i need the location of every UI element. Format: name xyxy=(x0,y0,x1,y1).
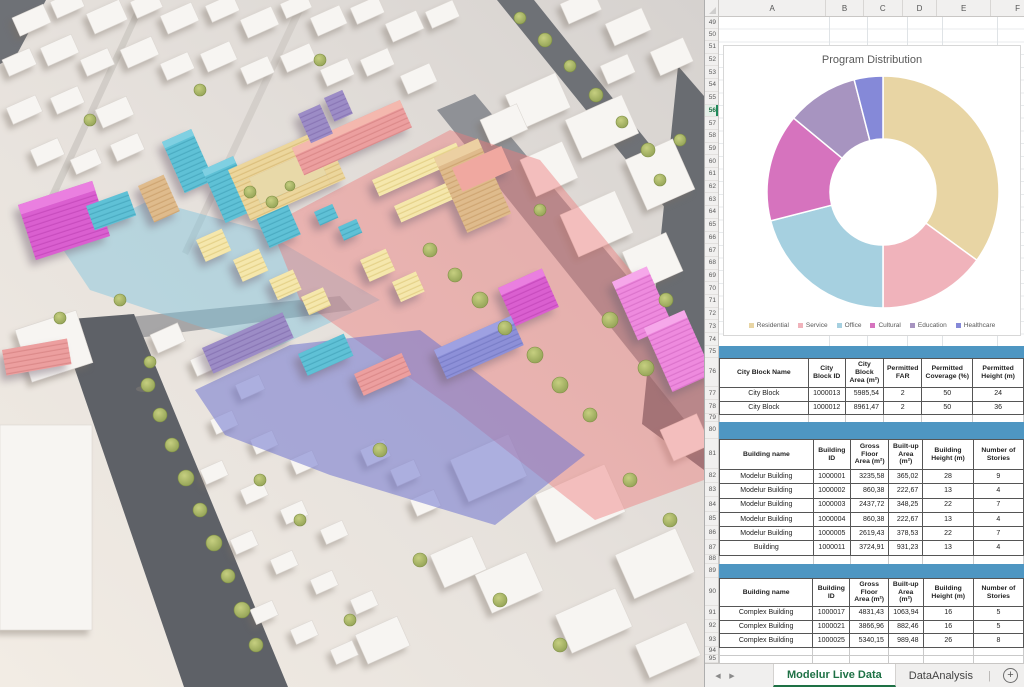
column-header-cell[interactable]: Permitted Coverage (%) xyxy=(922,359,973,388)
city-render xyxy=(0,0,704,687)
column-header-cell[interactable]: Gross Floor Area (m²) xyxy=(850,440,889,470)
legend-swatch xyxy=(870,323,875,328)
cell[interactable]: 8 xyxy=(973,634,1023,648)
legend-item: Education xyxy=(910,322,947,329)
row-header-86[interactable]: 86 xyxy=(705,526,718,540)
column-header-cell[interactable]: Building name xyxy=(720,579,813,607)
table-row: Modelur Building1000002860,38222,67134 xyxy=(720,484,1024,498)
row-header-93[interactable]: 93 xyxy=(705,633,718,647)
cell[interactable]: 365,02 xyxy=(889,470,923,484)
cell[interactable]: 1000002 xyxy=(813,484,850,498)
cell[interactable]: Modelur Building xyxy=(720,498,814,512)
cell[interactable]: 1063,94 xyxy=(888,607,923,621)
legend-swatch xyxy=(910,323,915,328)
column-header-F[interactable]: F xyxy=(991,0,1024,16)
row-header-76[interactable]: 76 xyxy=(705,358,718,387)
cell[interactable]: 5 xyxy=(973,607,1023,621)
table-row: Building10000113724,91931,23134 xyxy=(720,541,1024,555)
table-row: Complex Building10000213866,96882,46165 xyxy=(720,620,1024,634)
cell[interactable]: 8961,47 xyxy=(845,401,883,415)
chart-legend: ResidentialServiceOfficeCulturalEducatio… xyxy=(724,322,1020,329)
row-header-95[interactable]: 95 xyxy=(705,655,718,663)
row-header-53[interactable]: 53 xyxy=(705,66,718,79)
cell[interactable]: 860,38 xyxy=(850,512,889,526)
column-header-cell[interactable]: Built-up Area (m²) xyxy=(888,579,923,607)
column-header-B[interactable]: B xyxy=(826,0,863,16)
cell[interactable]: 3866,96 xyxy=(850,620,889,634)
legend-item: Cultural xyxy=(870,322,900,329)
cell[interactable]: 1000003 xyxy=(813,498,850,512)
cell[interactable]: Modelur Building xyxy=(720,512,814,526)
row-header-57[interactable]: 57 xyxy=(705,117,718,130)
column-header-cell[interactable]: Building Height (m) xyxy=(923,440,974,470)
donut-segment-office[interactable] xyxy=(771,205,883,308)
legend-item: Healthcare xyxy=(956,322,995,329)
cell[interactable]: 222,67 xyxy=(889,484,923,498)
tab-dataanalysis[interactable]: DataAnalysis xyxy=(896,664,986,687)
modelur-building-table: Building nameBuilding IDGross Floor Area… xyxy=(719,439,1024,565)
row-header-54[interactable]: 54 xyxy=(705,79,718,92)
row-header-50[interactable]: 50 xyxy=(705,29,718,41)
row-header-51[interactable]: 51 xyxy=(705,41,718,54)
cell[interactable] xyxy=(813,648,850,656)
cell[interactable]: 1000011 xyxy=(813,541,850,555)
empty-row xyxy=(720,648,1024,656)
table-row: City Block10000128961,4725036 xyxy=(720,401,1024,415)
cell[interactable]: 24 xyxy=(973,388,1024,402)
column-header-cell[interactable]: Built-up Area (m²) xyxy=(889,440,923,470)
row-header-77[interactable]: 77 xyxy=(705,387,718,401)
row-header-89[interactable]: 89 xyxy=(705,564,718,578)
3d-city-viewport[interactable] xyxy=(0,0,704,687)
column-header-cell[interactable]: Building ID xyxy=(813,440,850,470)
legend-item: Residential xyxy=(749,322,789,329)
table-row: Modelur Building1000004860,38222,67134 xyxy=(720,512,1024,526)
column-header-cell[interactable]: Permitted FAR xyxy=(884,359,922,388)
cell[interactable]: 5985,54 xyxy=(845,388,883,402)
cell[interactable]: 5340,15 xyxy=(850,634,889,648)
complex-building-table: Building nameBuilding IDGross Floor Area… xyxy=(719,578,1024,664)
donut-chart xyxy=(724,46,1020,335)
row-header-52[interactable]: 52 xyxy=(705,54,718,67)
cell[interactable] xyxy=(888,648,923,656)
table-row: Complex Building10000174831,431063,94165 xyxy=(720,607,1024,621)
column-header-cell[interactable]: City Block Area (m²) xyxy=(845,359,883,388)
legend-swatch xyxy=(749,323,754,328)
cell[interactable]: 26 xyxy=(923,634,973,648)
cell[interactable]: 22 xyxy=(923,527,974,541)
row-header-62[interactable]: 62 xyxy=(705,181,718,194)
tab-separator: | xyxy=(986,664,993,687)
legend-swatch xyxy=(798,323,803,328)
donut-segment-residential[interactable] xyxy=(883,76,999,260)
row-header-90[interactable]: 90 xyxy=(705,578,718,606)
column-header-cell[interactable]: Building ID xyxy=(813,579,850,607)
legend-swatch xyxy=(956,323,961,328)
cell[interactable]: 4831,43 xyxy=(850,607,889,621)
row-header-65[interactable]: 65 xyxy=(705,219,718,232)
cell[interactable]: 1000001 xyxy=(813,470,850,484)
row-header-55[interactable]: 55 xyxy=(705,92,718,105)
row-header-82[interactable]: 82 xyxy=(705,469,718,483)
cell[interactable]: 989,48 xyxy=(888,634,923,648)
legend-swatch xyxy=(837,323,842,328)
column-headers: ABCDEF xyxy=(705,0,1024,17)
cell[interactable] xyxy=(720,648,813,656)
cell[interactable]: 13 xyxy=(923,484,974,498)
row-header-88[interactable]: 88 xyxy=(705,555,718,564)
cell[interactable]: 1000012 xyxy=(808,401,845,415)
tab-modelur-live-data[interactable]: Modelur Live Data xyxy=(773,664,896,687)
legend-label: Cultural xyxy=(878,322,900,329)
legend-item: Service xyxy=(798,322,828,329)
cell[interactable]: 1000021 xyxy=(813,620,850,634)
cell[interactable]: 1000013 xyxy=(808,388,845,402)
row-header-83[interactable]: 83 xyxy=(705,483,718,497)
legend-label: Education xyxy=(918,322,947,329)
table-header-band[interactable] xyxy=(719,346,1024,358)
column-header-cell[interactable]: Gross Floor Area (m²) xyxy=(850,579,889,607)
cell[interactable]: 4 xyxy=(973,541,1023,555)
table-row: Complex Building10000255340,15989,48268 xyxy=(720,634,1024,648)
cell[interactable]: 36 xyxy=(973,401,1024,415)
row-header-92[interactable]: 92 xyxy=(705,620,718,634)
cell[interactable]: Modelur Building xyxy=(720,484,814,498)
row-header-74[interactable]: 74 xyxy=(705,333,718,346)
cell[interactable]: 22 xyxy=(923,498,974,512)
column-header-A[interactable]: A xyxy=(719,0,827,16)
cell[interactable]: 1000004 xyxy=(813,512,850,526)
cell[interactable]: Modelur Building xyxy=(720,470,814,484)
select-all-corner[interactable] xyxy=(705,0,719,16)
cell[interactable]: 7 xyxy=(973,527,1023,541)
cell[interactable]: 5 xyxy=(973,620,1023,634)
sheet-tab-bar: ◀ ▶ Modelur Live Data DataAnalysis | + xyxy=(705,663,1024,687)
cell[interactable]: 16 xyxy=(923,620,973,634)
cell[interactable]: 3235,58 xyxy=(850,470,889,484)
column-header-cell[interactable]: Building name xyxy=(720,440,814,470)
tab-nav-right-icon[interactable]: ▶ xyxy=(725,664,739,687)
row-header-78[interactable]: 78 xyxy=(705,400,718,414)
row-header-81[interactable]: 81 xyxy=(705,439,718,469)
table-row: Modelur Building10000032437,72348,25227 xyxy=(720,498,1024,512)
row-header-73[interactable]: 73 xyxy=(705,320,718,333)
legend-label: Healthcare xyxy=(964,322,995,329)
row-header-66[interactable]: 66 xyxy=(705,232,718,245)
cell[interactable]: 348,25 xyxy=(889,498,923,512)
row-header-56[interactable]: 56 xyxy=(705,105,718,118)
cell[interactable]: City Block xyxy=(720,401,809,415)
cell[interactable] xyxy=(850,648,889,656)
cell[interactable]: 860,38 xyxy=(850,484,889,498)
cell[interactable]: 50 xyxy=(922,401,973,415)
row-header-75[interactable]: 75 xyxy=(705,346,718,358)
cell[interactable]: 13 xyxy=(923,512,974,526)
cell[interactable] xyxy=(973,648,1023,656)
row-header-58[interactable]: 58 xyxy=(705,130,718,143)
row-header-70[interactable]: 70 xyxy=(705,282,718,295)
table-header-band[interactable] xyxy=(719,422,1024,439)
city-block-table: City Block NameCity Block IDCity Block A… xyxy=(719,358,1024,423)
cell[interactable]: 222,67 xyxy=(889,512,923,526)
table-row: City Block10000135985,5425024 xyxy=(720,388,1024,402)
row-header-72[interactable]: 72 xyxy=(705,308,718,321)
cell[interactable]: 378,53 xyxy=(889,527,923,541)
table-header-band[interactable] xyxy=(719,564,1024,578)
column-header-E[interactable]: E xyxy=(937,0,991,16)
cell[interactable]: 1000017 xyxy=(813,607,850,621)
column-header-cell[interactable]: Permitted Height (m) xyxy=(973,359,1024,388)
column-header-cell[interactable]: City Block ID xyxy=(808,359,845,388)
table-row: Modelur Building10000052619,43378,53227 xyxy=(720,527,1024,541)
cell[interactable]: 16 xyxy=(923,607,973,621)
cell[interactable]: Complex Building xyxy=(720,620,813,634)
row-header-71[interactable]: 71 xyxy=(705,295,718,308)
row-header-80[interactable]: 80 xyxy=(705,422,718,439)
cell[interactable]: 28 xyxy=(923,470,974,484)
cell[interactable]: 4 xyxy=(973,484,1023,498)
row-header-64[interactable]: 64 xyxy=(705,206,718,219)
row-header-87[interactable]: 87 xyxy=(705,540,718,554)
column-header-cell[interactable]: City Block Name xyxy=(720,359,809,388)
chart-area[interactable]: Program Distribution ResidentialServiceO… xyxy=(723,45,1021,336)
cell[interactable]: Modelur Building xyxy=(720,527,814,541)
app-window: ABCDEF 495051525354555657585960616263646… xyxy=(0,0,1024,687)
row-header-49[interactable]: 49 xyxy=(705,17,718,29)
cell[interactable]: 2437,72 xyxy=(850,498,889,512)
cell[interactable]: Complex Building xyxy=(720,607,813,621)
cell[interactable]: Building xyxy=(720,541,814,555)
excel-panel: ABCDEF 495051525354555657585960616263646… xyxy=(704,0,1024,687)
cell[interactable]: 4 xyxy=(973,512,1023,526)
row-header-59[interactable]: 59 xyxy=(705,143,718,156)
column-header-cell[interactable]: Building Height (m) xyxy=(923,579,973,607)
column-header-D[interactable]: D xyxy=(903,0,937,16)
cell[interactable]: 9 xyxy=(973,470,1023,484)
row-header-68[interactable]: 68 xyxy=(705,257,718,270)
cell[interactable]: 3724,91 xyxy=(850,541,889,555)
row-header-63[interactable]: 63 xyxy=(705,193,718,206)
row-header-67[interactable]: 67 xyxy=(705,244,718,257)
cell[interactable]: 1000025 xyxy=(813,634,850,648)
legend-label: Residential xyxy=(757,322,789,329)
cell[interactable]: 2 xyxy=(884,401,922,415)
column-header-C[interactable]: C xyxy=(864,0,903,16)
cell[interactable]: 931,23 xyxy=(889,541,923,555)
cell[interactable]: City Block xyxy=(720,388,809,402)
table-row: Modelur Building10000013235,58365,02289 xyxy=(720,470,1024,484)
tab-nav-left-icon[interactable]: ◀ xyxy=(711,664,725,687)
cell[interactable]: 13 xyxy=(923,541,974,555)
cell[interactable]: 1000005 xyxy=(813,527,850,541)
cell[interactable]: 2 xyxy=(884,388,922,402)
column-header-cell[interactable]: Number of Stories xyxy=(973,440,1023,470)
row-header-84[interactable]: 84 xyxy=(705,497,718,511)
row-header-91[interactable]: 91 xyxy=(705,606,718,620)
row-header-69[interactable]: 69 xyxy=(705,270,718,283)
column-header-cell[interactable]: Number of Stories xyxy=(973,579,1023,607)
legend-label: Office xyxy=(845,322,862,329)
cell[interactable] xyxy=(923,648,973,656)
cell[interactable]: Complex Building xyxy=(720,634,813,648)
cell[interactable]: 50 xyxy=(922,388,973,402)
chart-title: Program Distribution xyxy=(724,54,1020,66)
cell[interactable]: 882,46 xyxy=(888,620,923,634)
add-sheet-button[interactable]: + xyxy=(1003,668,1018,683)
row-number-gutter: 4950515253545556575859606162636465666768… xyxy=(705,17,719,663)
row-header-85[interactable]: 85 xyxy=(705,512,718,526)
row-header-94[interactable]: 94 xyxy=(705,647,718,655)
legend-label: Service xyxy=(806,322,828,329)
row-header-61[interactable]: 61 xyxy=(705,168,718,181)
legend-item: Office xyxy=(837,322,862,329)
cell[interactable]: 2619,43 xyxy=(850,527,889,541)
cell[interactable]: 7 xyxy=(973,498,1023,512)
row-header-79[interactable]: 79 xyxy=(705,414,718,422)
row-header-60[interactable]: 60 xyxy=(705,155,718,168)
